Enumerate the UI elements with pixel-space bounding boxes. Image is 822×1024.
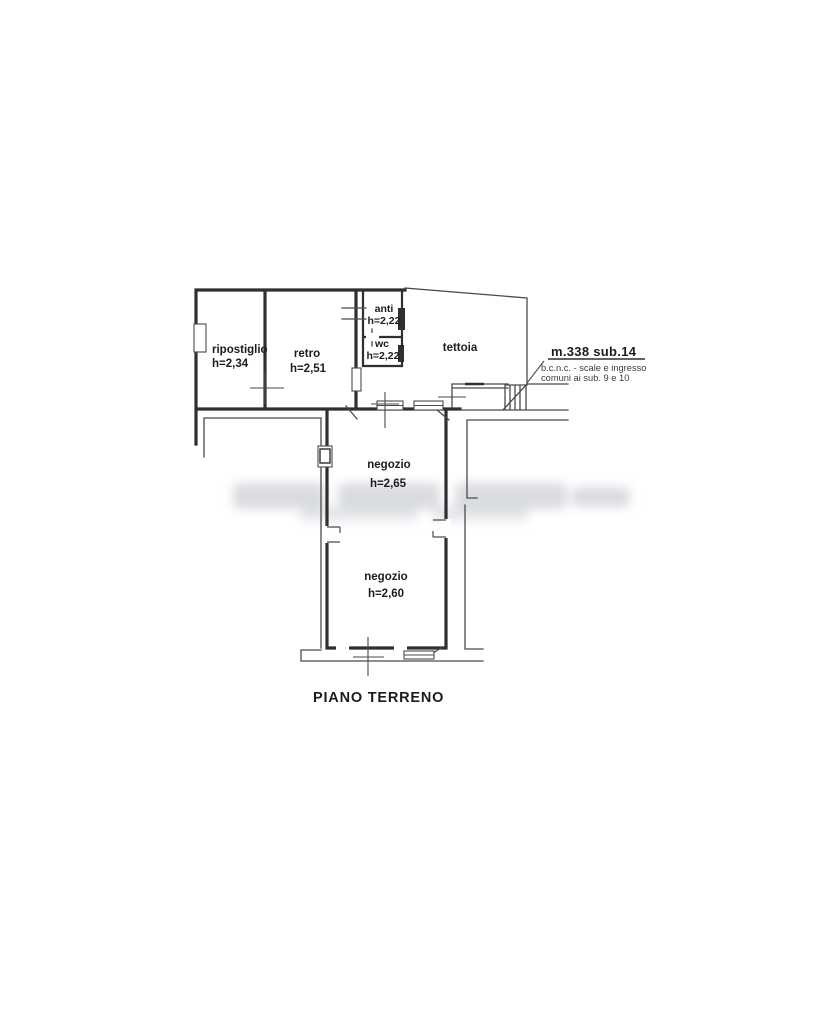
room-height-negozio-2: h=2,60 <box>368 588 404 600</box>
floor-plan-drawing: ripostiglio h=2,34 retro h=2,51 anti h=2… <box>0 0 822 1024</box>
room-height-ripostiglio: h=2,34 <box>212 358 249 370</box>
annotation-title: m.338 sub.14 <box>551 344 637 359</box>
room-label-tettoia: tettoia <box>443 342 478 354</box>
page: ripostiglio h=2,34 retro h=2,51 anti h=2… <box>0 0 822 1024</box>
room-height-anti: h=2,22 <box>368 315 401 327</box>
window-ripostiglio <box>194 324 206 352</box>
room-height-negozio-1: h=2,65 <box>370 478 407 490</box>
room-label-negozio-2: negozio <box>364 571 407 583</box>
room-label-ripostiglio: ripostiglio <box>212 344 268 356</box>
room-height-retro: h=2,51 <box>290 363 327 375</box>
room-label-retro: retro <box>294 348 320 360</box>
floor-title: PIANO TERRENO <box>313 690 444 706</box>
annotation-description-line1: b.c.n.c. - scale e ingresso <box>541 363 646 373</box>
opening-negozio-left <box>322 526 331 543</box>
room-label-anti: anti <box>375 303 394 315</box>
room-label-wc: wc <box>374 338 389 350</box>
opening-negozio-right <box>441 519 450 538</box>
room-height-wc: h=2,22 <box>367 350 400 362</box>
opening-negozio-bottom-1 <box>336 644 349 654</box>
annotation-description-line2: comuni ai sub. 9 e 10 <box>541 373 629 383</box>
door-retro <box>352 368 361 391</box>
room-label-negozio-1: negozio <box>367 459 410 471</box>
